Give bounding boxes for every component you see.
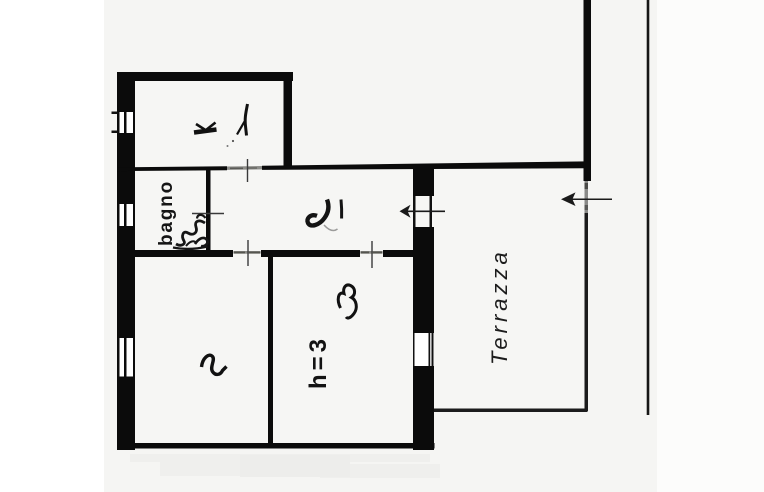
svg-text:h=3: h=3 <box>305 335 332 389</box>
svg-text:Terrazza: Terrazza <box>487 248 512 365</box>
svg-text:bagno: bagno <box>156 180 177 246</box>
